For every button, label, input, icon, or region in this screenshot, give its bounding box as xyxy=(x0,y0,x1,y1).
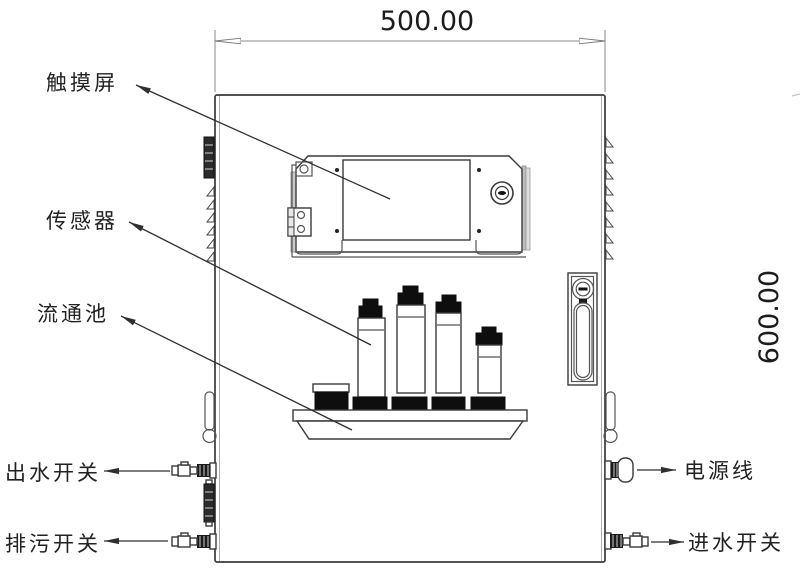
left-clips xyxy=(207,187,214,261)
label-touchscreen: 触摸屏 xyxy=(46,71,118,95)
width-dimension-text: 500.00 xyxy=(380,6,474,37)
screw-top-right xyxy=(477,168,481,172)
label-flow-cell: 流通池 xyxy=(37,302,109,326)
lifting-loop-left xyxy=(203,392,216,443)
technical-drawing-canvas: 500.00 600.00 xyxy=(0,0,800,570)
inlet-valve xyxy=(605,533,648,549)
panel-hinge xyxy=(288,208,311,236)
sensor-2 xyxy=(392,286,427,410)
outlet-valve xyxy=(172,462,216,478)
panel-right-trim-2 xyxy=(526,168,530,250)
drain-valve xyxy=(172,533,216,549)
door-handle xyxy=(568,273,597,385)
flow-cell-tray xyxy=(293,410,527,439)
label-power-cable: 电源线 xyxy=(684,459,756,483)
label-drain-switch: 排污开关 xyxy=(5,532,101,556)
width-dimension: 500.00 xyxy=(215,6,605,92)
hinge-mid-left xyxy=(204,480,214,526)
left-edge-hardware xyxy=(172,137,216,549)
label-sensor: 传感器 xyxy=(46,209,118,233)
hinge-top-left xyxy=(204,137,214,178)
dimension-tick xyxy=(792,94,800,96)
right-clips xyxy=(606,138,613,259)
screw-top-left xyxy=(335,168,339,172)
lifting-loop-right xyxy=(604,392,617,443)
reagent-cup xyxy=(313,384,349,409)
sensor-3 xyxy=(432,295,465,410)
cabinet-drawing: 500.00 600.00 xyxy=(0,0,800,570)
right-edge-hardware xyxy=(604,138,648,549)
screw-bottom-left xyxy=(335,229,339,233)
panel-lock xyxy=(491,182,513,204)
screw-bottom-right xyxy=(477,229,481,233)
label-outlet-switch: 出水开关 xyxy=(5,461,101,485)
height-dimension: 600.00 xyxy=(754,94,800,364)
power-cable-gland xyxy=(605,458,633,482)
height-dimension-text: 600.00 xyxy=(754,270,785,364)
label-inlet-switch: 进水开关 xyxy=(688,531,784,555)
screen xyxy=(343,160,470,240)
touchscreen-panel xyxy=(288,156,530,257)
